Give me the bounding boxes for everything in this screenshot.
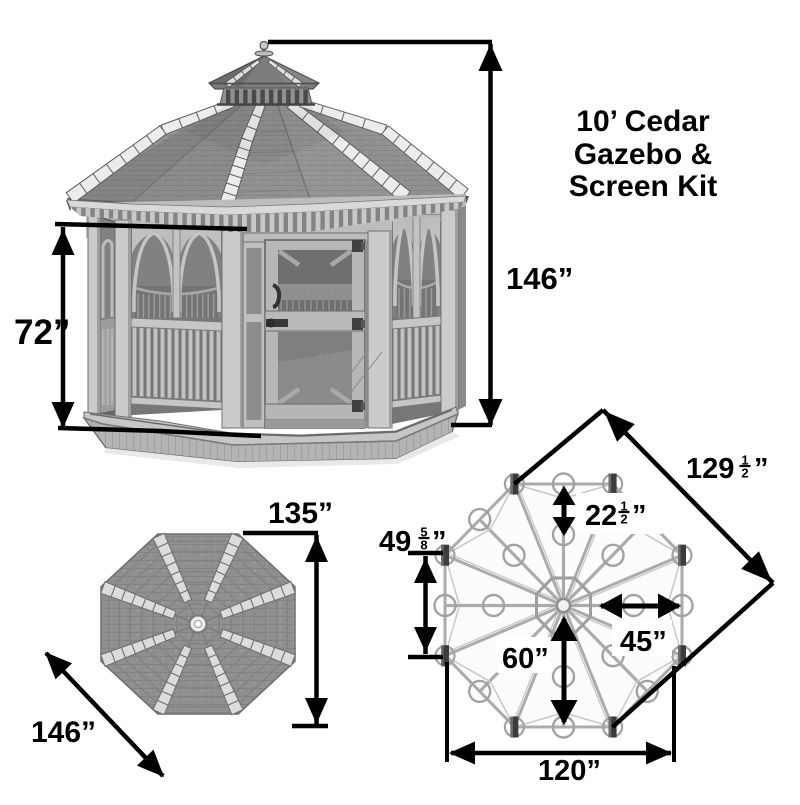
svg-text:60”: 60”	[502, 643, 549, 675]
svg-text:Screen Kit: Screen Kit	[569, 170, 717, 203]
svg-text:146”: 146”	[506, 261, 573, 296]
svg-text:10’ Cedar: 10’ Cedar	[576, 105, 710, 138]
svg-text:2: 2	[741, 466, 748, 481]
svg-text:2: 2	[620, 512, 627, 527]
svg-text:22: 22	[585, 500, 617, 532]
svg-text:”: ”	[432, 526, 447, 558]
svg-text:8: 8	[420, 538, 427, 553]
svg-text:129: 129	[686, 453, 734, 485]
svg-text:49: 49	[379, 526, 411, 558]
svg-text:45”: 45”	[620, 626, 667, 658]
svg-text:Gazebo &: Gazebo &	[574, 138, 712, 171]
svg-text:120”: 120”	[538, 755, 601, 787]
svg-text:135”: 135”	[268, 497, 333, 530]
svg-text:146”: 146”	[31, 716, 96, 749]
svg-text:72”: 72”	[14, 313, 70, 352]
svg-text:”: ”	[754, 453, 769, 485]
svg-text:”: ”	[632, 500, 647, 532]
